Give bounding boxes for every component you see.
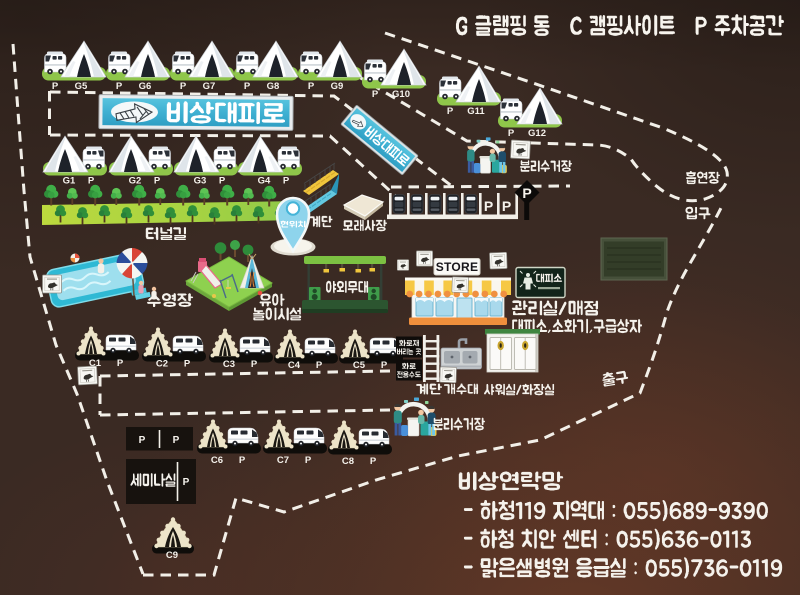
svg-text:G9: G9 [331,81,344,92]
svg-text:P: P [219,176,226,187]
svg-text:C5: C5 [353,360,366,371]
svg-text:C2: C2 [156,359,168,370]
svg-text:P: P [173,435,180,446]
svg-text:STORE: STORE [436,260,479,274]
svg-text:P: P [308,81,315,92]
svg-text:P: P [316,360,323,371]
svg-text:C3: C3 [223,359,235,370]
svg-text:P: P [370,456,377,467]
svg-text:C4: C4 [288,360,301,371]
svg-text:P: P [283,176,290,187]
svg-text:P: P [522,185,531,201]
svg-text:P: P [88,176,95,187]
svg-text:G12: G12 [528,128,546,139]
svg-text:P: P [244,81,251,92]
svg-text:P: P [502,198,511,214]
svg-text:G4: G4 [258,176,271,187]
svg-text:G10: G10 [392,89,410,100]
svg-text:G5: G5 [75,81,88,92]
svg-text:P: P [180,81,187,92]
svg-text:G8: G8 [267,81,280,92]
svg-text:G1: G1 [63,176,76,187]
svg-text:P: P [139,435,146,446]
svg-text:P: P [183,477,190,488]
svg-text:P: P [508,128,515,139]
svg-text:C9: C9 [166,550,178,561]
svg-text:G11: G11 [467,106,485,117]
svg-text:G6: G6 [139,81,152,92]
svg-text:P: P [381,360,388,371]
svg-text:P: P [117,358,124,369]
svg-text:P: P [484,198,493,214]
svg-text:P: P [239,455,246,466]
svg-text:P: P [154,176,161,187]
svg-text:G7: G7 [203,81,216,92]
svg-text:P: P [372,89,379,100]
svg-text:P: P [184,359,191,370]
svg-text:P: P [251,359,258,370]
svg-text:C8: C8 [342,456,354,467]
svg-text:C6: C6 [211,455,223,466]
svg-text:P: P [116,81,123,92]
svg-text:G3: G3 [194,176,207,187]
svg-text:P: P [52,81,59,92]
svg-text:P: P [447,106,454,117]
svg-text:C7: C7 [277,455,289,466]
svg-text:P: P [305,455,312,466]
